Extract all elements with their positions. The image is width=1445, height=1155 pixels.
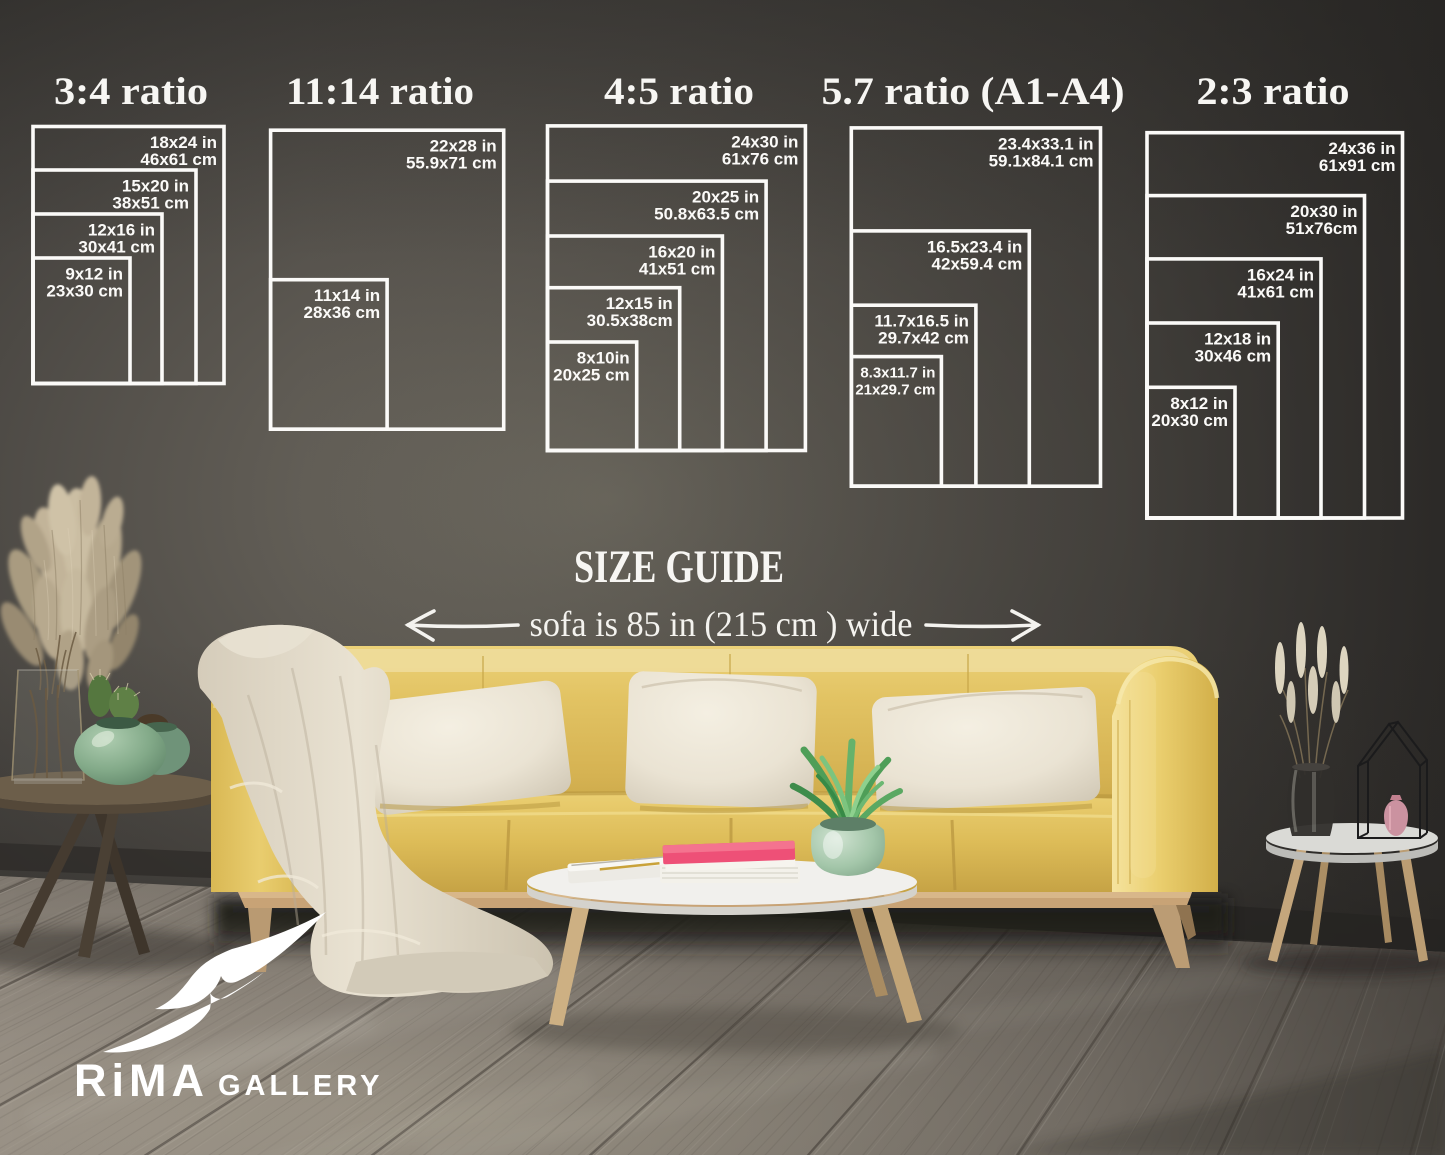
svg-text:12x18 in30x46 cm: 12x18 in30x46 cm xyxy=(1195,330,1272,366)
svg-text:8.3x11.7 in21x29.7 cm: 8.3x11.7 in21x29.7 cm xyxy=(855,365,935,399)
svg-text:RiMA: RiMA xyxy=(74,1055,209,1106)
svg-text:4:5 ratio: 4:5 ratio xyxy=(604,70,754,113)
svg-text:11:14 ratio: 11:14 ratio xyxy=(286,70,474,113)
svg-text:3:4 ratio: 3:4 ratio xyxy=(54,70,208,113)
svg-text:GALLERY: GALLERY xyxy=(218,1070,383,1102)
svg-text:sofa is 85 in (215 cm ) wide: sofa is 85 in (215 cm ) wide xyxy=(530,604,913,644)
svg-text:15x20 in38x51 cm: 15x20 in38x51 cm xyxy=(112,177,189,213)
svg-text:18x24 in46x61 cm: 18x24 in46x61 cm xyxy=(140,133,217,169)
svg-text:23.4x33.1 in59.1x84.1 cm: 23.4x33.1 in59.1x84.1 cm xyxy=(989,134,1094,170)
svg-text:2:3 ratio: 2:3 ratio xyxy=(1197,70,1350,113)
svg-text:16x24 in41x61 cm: 16x24 in41x61 cm xyxy=(1237,265,1314,301)
svg-text:20x30 in51x76cm: 20x30 in51x76cm xyxy=(1286,202,1358,238)
svg-text:16.5x23.4 in42x59.4 cm: 16.5x23.4 in42x59.4 cm xyxy=(927,237,1022,273)
svg-text:11x14 in28x36 cm: 11x14 in28x36 cm xyxy=(304,286,381,322)
svg-text:24x36 in61x91 cm: 24x36 in61x91 cm xyxy=(1319,139,1396,175)
svg-text:16x20 in41x51 cm: 16x20 in41x51 cm xyxy=(639,243,716,279)
svg-text:SIZE GUIDE: SIZE GUIDE xyxy=(574,541,784,593)
svg-text:5.7 ratio (A1-A4): 5.7 ratio (A1-A4) xyxy=(822,70,1125,113)
svg-text:12x16 in30x41 cm: 12x16 in30x41 cm xyxy=(78,221,155,257)
svg-text:11.7x16.5 in29.7x42 cm: 11.7x16.5 in29.7x42 cm xyxy=(874,312,969,348)
svg-text:24x30 in61x76 cm: 24x30 in61x76 cm xyxy=(722,132,799,168)
